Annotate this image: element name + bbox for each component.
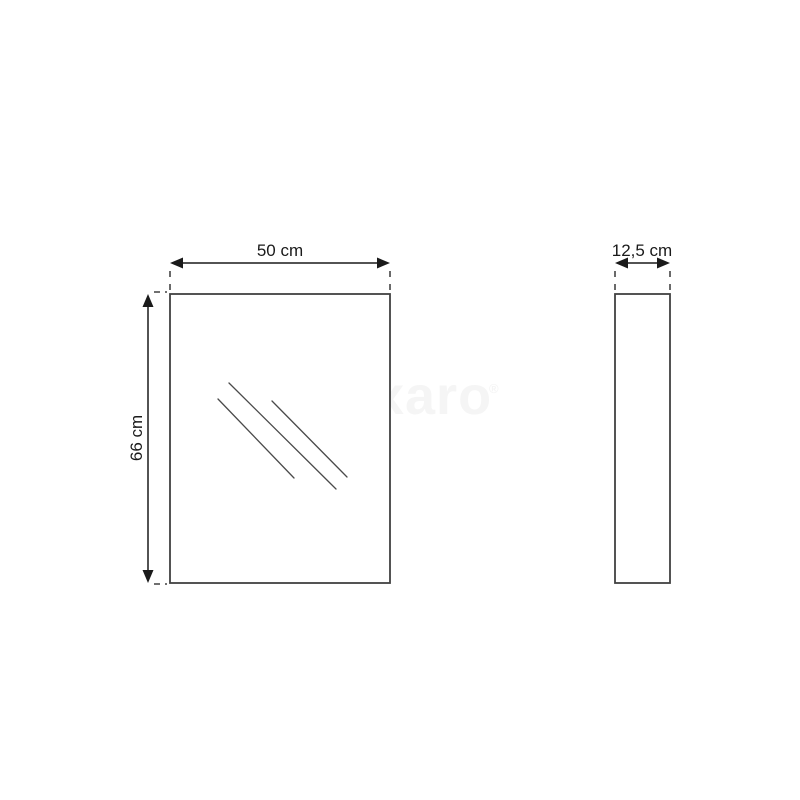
arrow-left-icon [170,258,183,269]
front-view-outline [170,294,390,583]
height-dimension: 66 cm [127,292,167,584]
depth-dimension: 12,5 cm [612,241,672,292]
depth-dimension-label: 12,5 cm [612,241,672,260]
dimension-diagram: maxaro ® 50 cm 66 cm [0,0,800,800]
height-dimension-label: 66 cm [127,415,146,461]
arrow-up-icon [143,294,154,307]
side-view-outline [615,294,670,583]
arrow-down-icon [143,570,154,583]
registered-trademark-icon: ® [489,381,499,396]
width-dimension: 50 cm [170,241,390,292]
arrow-right-icon [377,258,390,269]
width-dimension-label: 50 cm [257,241,303,260]
technical-drawing-canvas: maxaro ® 50 cm 66 cm [0,0,800,800]
